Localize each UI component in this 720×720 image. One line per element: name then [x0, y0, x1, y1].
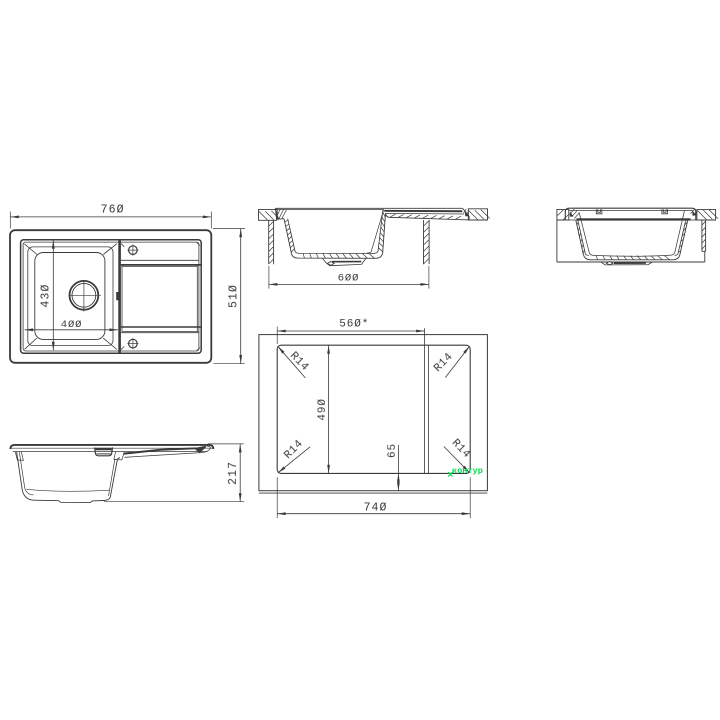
svg-text:51Ø: 51Ø — [227, 284, 240, 308]
svg-text:76Ø: 76Ø — [101, 203, 125, 216]
svg-text:R14: R14 — [432, 351, 456, 375]
svg-text:65: 65 — [387, 443, 399, 458]
svg-text:56Ø*: 56Ø* — [339, 318, 369, 330]
svg-text:43Ø: 43Ø — [40, 284, 53, 308]
svg-text:4ØØ: 4ØØ — [61, 319, 83, 331]
svg-text:74Ø: 74Ø — [364, 501, 388, 514]
svg-text:контур: контур — [452, 466, 483, 476]
svg-text:R14: R14 — [282, 438, 306, 462]
svg-text:6ØØ: 6ØØ — [338, 273, 360, 285]
svg-text:R14: R14 — [287, 350, 311, 374]
svg-text:R14: R14 — [449, 437, 473, 461]
svg-text:217: 217 — [227, 461, 240, 485]
svg-text:49Ø: 49Ø — [317, 398, 329, 421]
